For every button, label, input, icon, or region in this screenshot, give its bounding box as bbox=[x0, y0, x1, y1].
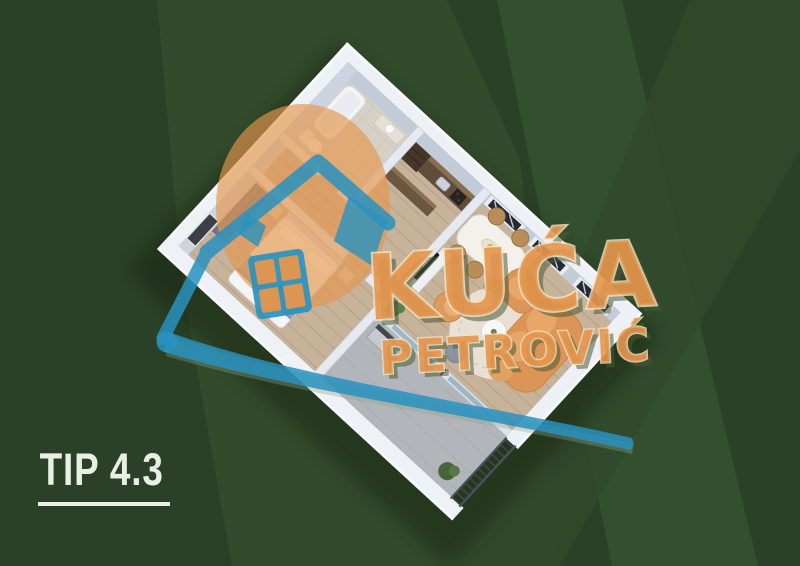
brand-text: KUĆA KUĆA PETROVIĆ PETROVIĆ bbox=[363, 219, 667, 390]
logo-window-icon bbox=[247, 248, 312, 320]
apartment-type-label: TIP 4.3 bbox=[38, 444, 170, 506]
promo-image: KUĆA KUĆA PETROVIĆ PETROVIĆ TIP 4.3 bbox=[0, 0, 800, 566]
